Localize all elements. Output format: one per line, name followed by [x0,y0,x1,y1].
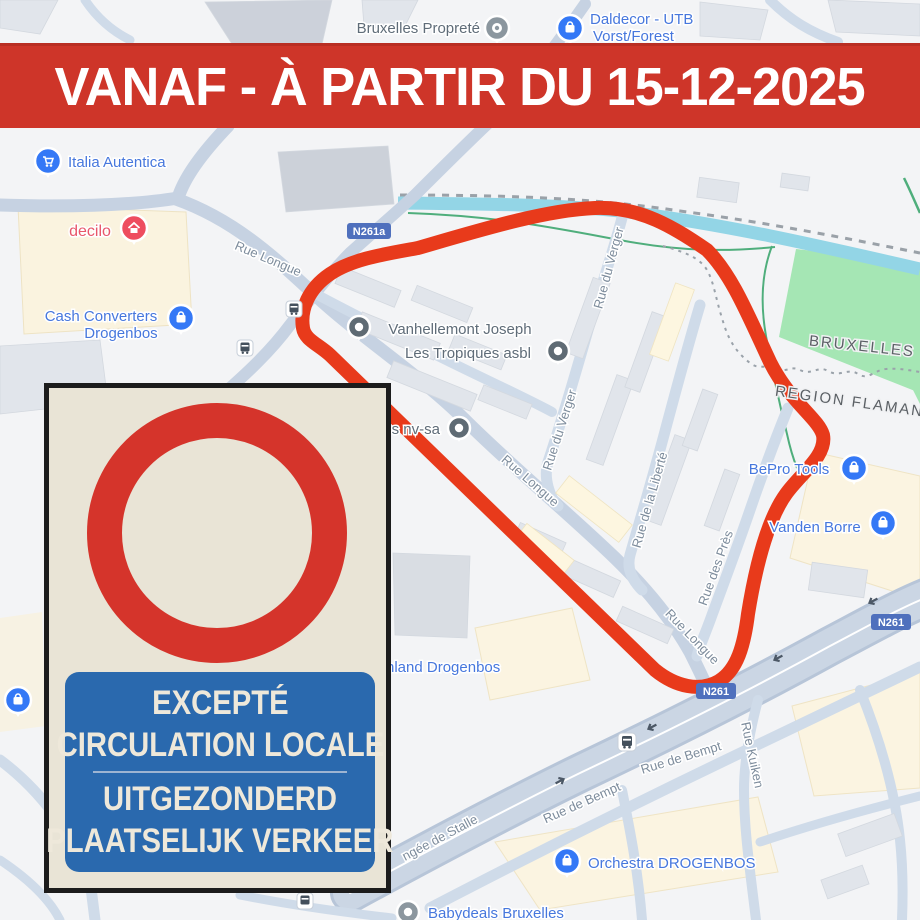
sign-divider [93,771,347,773]
label-italia: Italia Autentica [68,154,166,171]
bus-stop-icon [618,733,636,751]
label-hland-drogenbos: hland Drogenbos [386,659,500,676]
label-s-nv-sa: s nv-sa [392,421,441,438]
no-entry-sign: EXCEPTÉ CIRCULATION LOCALE UITGEZONDERD … [44,383,391,893]
label-bruxelles-proprete: Bruxelles Propreté [357,20,480,37]
bus-stop-icon [286,301,302,317]
label-decilo: decilo [69,223,111,240]
date-banner: VANAF - À PARTIR DU 15-12-2025 [0,43,920,128]
prohibition-ring-icon [87,403,347,663]
svg-text:N261: N261 [878,617,904,629]
label-daldecor-line1: Daldecor - UTB [590,11,693,28]
sign-exception-panel: EXCEPTÉ CIRCULATION LOCALE UITGEZONDERD … [65,672,375,872]
label-vanhellemont: Vanhellemont Joseph [388,321,531,338]
sign-line-circulation: CIRCULATION LOCALE [56,724,384,766]
bus-stop-icon [237,340,253,356]
label-bepro: BePro Tools [749,461,830,478]
svg-text:N261: N261 [703,686,729,698]
bus-stop-icon [297,893,313,909]
sign-line-plaatselijk: PLAATSELIJK VERKEER [46,820,393,862]
sign-line-excepte: EXCEPTÉ [152,682,288,724]
label-orchestra: Orchestra DROGENBOS [588,855,756,872]
route-badge-n261-left: N261 [696,683,736,699]
label-cash-line2: Drogenbos [84,325,157,342]
poi-pin-babydeals[interactable] [397,901,419,920]
banner-text: VANAF - À PARTIR DU 15-12-2025 [55,56,865,118]
svg-text:N261a: N261a [353,226,386,238]
sign-line-uitgezonderd: UITGEZONDERD [103,778,337,820]
route-badge-n261-right: N261 [871,614,911,630]
label-cash-line1: Cash Converters [45,308,158,325]
route-badge-n261a: N261a [347,223,391,239]
label-vanden-borre: Vanden Borre [769,519,860,536]
label-tropiques: Les Tropiques asbl [405,345,531,362]
screenshot-root: N261a N261 N261 Rue Longue Rue Longue Ru… [0,0,920,920]
label-babydeals: Babydeals Bruxelles [428,905,564,920]
